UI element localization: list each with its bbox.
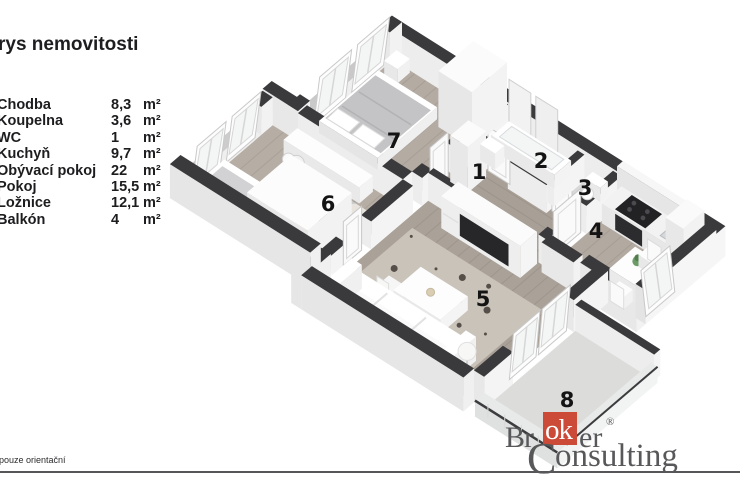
page-title: rys nemovitosti	[0, 34, 138, 56]
legend-value: 4	[111, 212, 143, 228]
legend-name: Ložnice	[0, 195, 111, 211]
legend-name: Chodba	[0, 97, 111, 113]
legend-name: Koupelna	[0, 113, 111, 129]
legend-unit: m²	[143, 195, 161, 211]
legend-row: Chodba8,3m²	[0, 97, 161, 113]
room-number-label: 1	[472, 160, 487, 184]
table-decor	[427, 288, 435, 296]
room-number-label: 7	[387, 129, 402, 153]
rug-speckle	[391, 265, 398, 272]
rug-speckle	[484, 332, 487, 335]
plan-dot	[645, 209, 650, 214]
floor-lamp	[458, 342, 476, 360]
room-legend: Chodba8,3m²Koupelna3,6m²WC1m²Kuchyň9,7m²…	[0, 97, 161, 228]
legend-row: Pokoj15,5m²	[0, 179, 161, 195]
legend-unit: m²	[143, 179, 161, 195]
legend-name: Obývací pokoj	[0, 163, 111, 179]
legend-unit: m²	[143, 113, 161, 129]
legend-value: 1	[111, 130, 143, 146]
room-number-label: 2	[534, 149, 549, 173]
legend-value: 15,5	[111, 179, 143, 195]
rug-speckle	[410, 235, 413, 238]
legend-unit: m²	[143, 97, 161, 113]
legend-value: 12,1	[111, 195, 143, 211]
legend-row: Koupelna3,6m²	[0, 113, 161, 129]
disclaimer-note: pouze orientační	[0, 455, 66, 465]
legend-value: 8,3	[111, 97, 143, 113]
legend-name: Balkón	[0, 212, 111, 228]
legend-unit: m²	[143, 146, 161, 162]
legend-name: Pokoj	[0, 179, 111, 195]
legend-name: WC	[0, 130, 111, 146]
room-number-label: 3	[578, 176, 593, 200]
legend-name: Kuchyň	[0, 146, 111, 162]
legend-value: 9,7	[111, 146, 143, 162]
legend-row: Obývací pokoj22m²	[0, 163, 161, 179]
legend-row: WC1m²	[0, 130, 161, 146]
rug-speckle	[457, 323, 462, 328]
plan-dot	[641, 216, 646, 221]
floor-plan-image: 12345678 rys nemovitosti Chodba8,3m²Koup…	[0, 0, 740, 493]
legend-value: 3,6	[111, 113, 143, 129]
bottom-divider-line	[0, 471, 740, 473]
legend-row: Kuchyň9,7m²	[0, 146, 161, 162]
room-number-label: 6	[321, 192, 336, 216]
plan-dot	[627, 207, 632, 212]
plan-dot	[632, 201, 637, 206]
legend-unit: m²	[143, 163, 161, 179]
legend-row: Ložnice12,1m²	[0, 195, 161, 211]
rug-speckle	[459, 274, 466, 281]
room-number-label: 5	[476, 287, 491, 311]
room-number-label: 4	[589, 219, 604, 243]
rug-speckle	[435, 267, 438, 270]
room-number-label: 8	[560, 388, 575, 412]
legend-row: Balkón4m²	[0, 212, 161, 228]
floor-plan-svg: 12345678	[0, 0, 740, 493]
legend-unit: m²	[143, 212, 161, 228]
legend-value: 22	[111, 163, 143, 179]
legend-unit: m²	[143, 130, 161, 146]
